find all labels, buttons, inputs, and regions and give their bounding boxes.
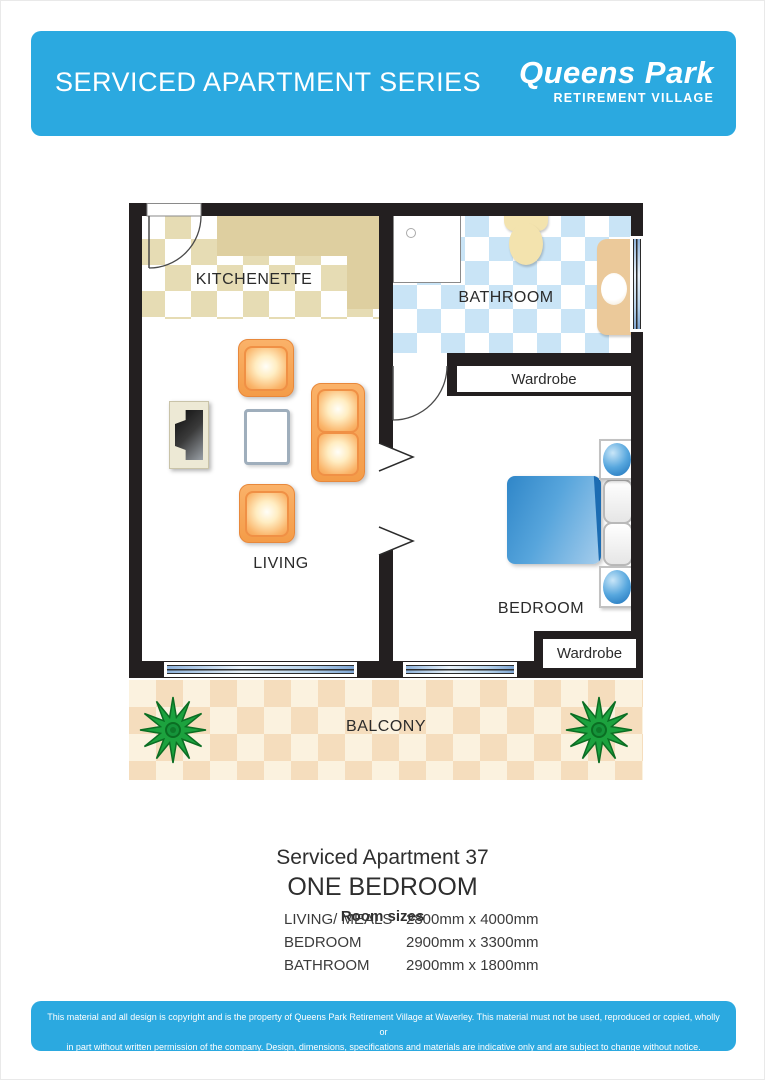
brand-name: Queens Park <box>519 57 714 88</box>
wardrobe-label: Wardrobe <box>511 371 576 388</box>
brochure-page: SERVICED APARTMENT SERIES Queens Park RE… <box>0 0 765 1080</box>
page-title: SERVICED APARTMENT SERIES <box>55 67 481 98</box>
lamp <box>603 443 631 476</box>
window <box>403 662 517 677</box>
room-size-value: 2900mm x 1800mm <box>406 957 539 974</box>
window <box>164 662 357 677</box>
room-size-value: 2800mm x 4000mm <box>406 911 539 928</box>
balcony: BALCONY <box>129 680 643 780</box>
room-label-kitchenette: KITCHENETTE <box>164 271 344 289</box>
wall <box>379 216 393 451</box>
tv-unit <box>169 401 209 469</box>
coffee-table <box>244 409 290 465</box>
bathroom-door-swing <box>393 366 447 420</box>
room-label-living: LIVING <box>219 555 343 573</box>
room-size-row: BATHROOM 2900mm x 1800mm <box>284 957 524 974</box>
wall <box>379 549 393 661</box>
room-label-balcony: BALCONY <box>129 718 643 736</box>
bed <box>507 476 601 564</box>
wardrobe-label: Wardrobe <box>557 645 622 662</box>
kitchen-counter <box>217 213 379 256</box>
room-label-bedroom: BEDROOM <box>474 600 608 618</box>
brand-subtitle: RETIREMENT VILLAGE <box>519 91 714 105</box>
wall <box>129 203 643 216</box>
pillow <box>603 479 633 524</box>
shower <box>393 213 461 283</box>
room-size-row: LIVING/ MEALS 2800mm x 4000mm <box>284 911 524 928</box>
room-label-bathroom: BATHROOM <box>416 289 596 307</box>
wardrobe: Wardrobe <box>447 353 633 396</box>
brand-logo: Queens Park RETIREMENT VILLAGE <box>519 57 714 105</box>
apartment-type: ONE BEDROOM <box>1 873 764 902</box>
wall <box>129 203 142 678</box>
apartment-title: Serviced Apartment 37 <box>1 846 764 870</box>
floorplan: Wardrobe Wardrobe KITCHENETTE BATHROOM L… <box>129 203 643 678</box>
room-size-label: LIVING/ MEALS <box>284 911 406 928</box>
footer-bar: This material and all design is copyrigh… <box>31 1001 736 1051</box>
nightstand <box>599 439 635 480</box>
copyright-line1: This material and all design is copyrigh… <box>45 1010 722 1040</box>
lamp <box>603 570 631 604</box>
window <box>630 236 644 332</box>
room-size-value: 2900mm x 3300mm <box>406 934 539 951</box>
header-bar: SERVICED APARTMENT SERIES Queens Park RE… <box>31 31 736 136</box>
armchair <box>239 484 295 543</box>
room-sizes-table: LIVING/ MEALS 2800mm x 4000mm BEDROOM 29… <box>284 911 524 980</box>
copyright-line2: in part without written permission of th… <box>45 1040 722 1055</box>
pillow <box>603 522 633 566</box>
kitchen-counter <box>347 256 379 309</box>
copyright-text: This material and all design is copyrigh… <box>45 1010 722 1055</box>
room-size-label: BEDROOM <box>284 934 406 951</box>
vanity-sink <box>597 239 633 335</box>
sofa <box>311 383 365 482</box>
shower-drain <box>406 228 416 238</box>
room-size-label: BATHROOM <box>284 957 406 974</box>
armchair <box>238 339 294 397</box>
room-size-row: BEDROOM 2900mm x 3300mm <box>284 934 524 951</box>
toilet <box>504 209 548 267</box>
wardrobe: Wardrobe <box>534 631 643 678</box>
